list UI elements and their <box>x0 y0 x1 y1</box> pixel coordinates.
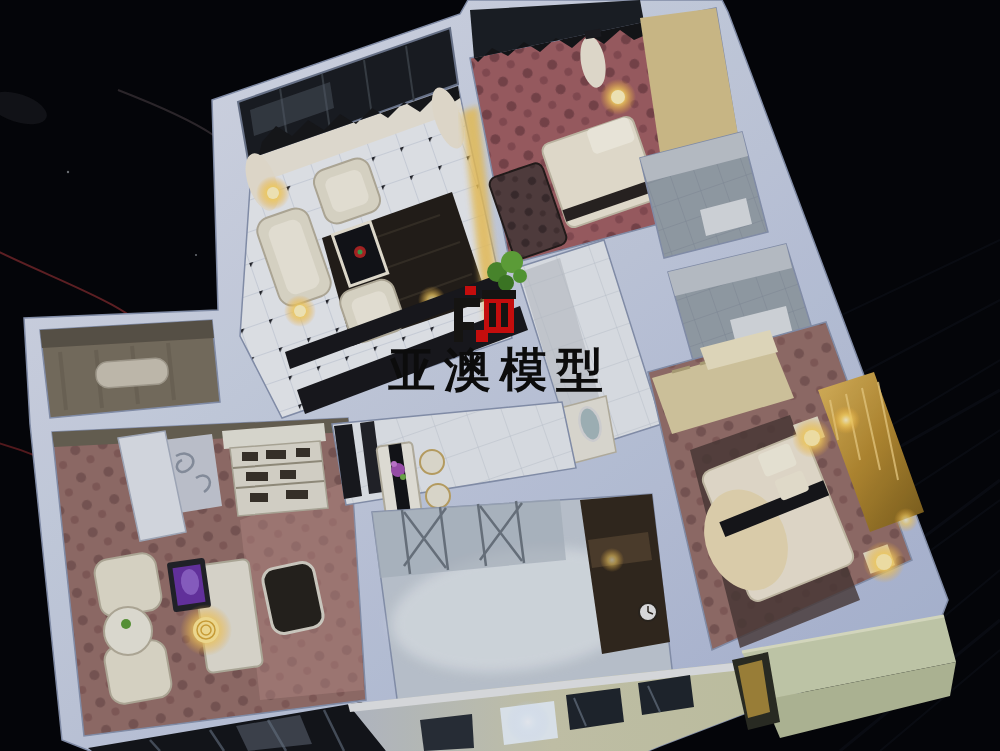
watermark-text: 亚澳模型 <box>340 340 660 402</box>
photo-of-scale-model: 亚澳模型 <box>0 0 1000 751</box>
ya-ao-model-logo-icon <box>454 286 518 348</box>
